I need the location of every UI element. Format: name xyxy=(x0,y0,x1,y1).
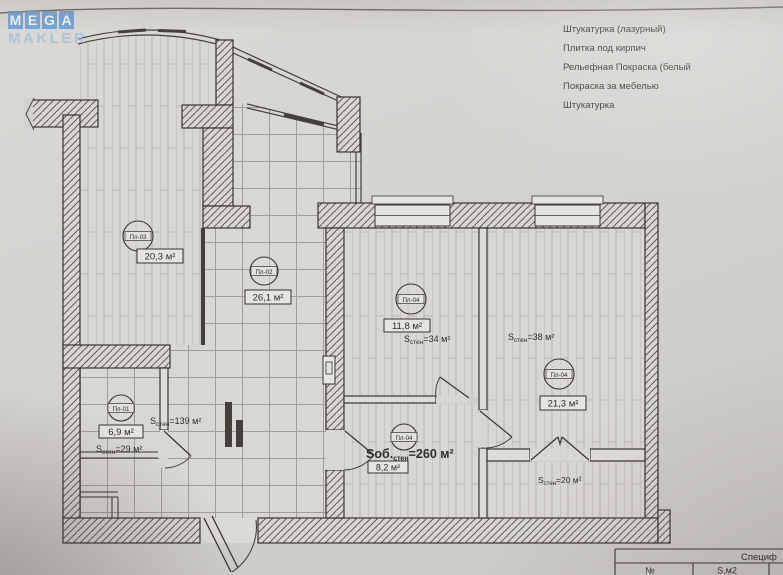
spec-table: Специф № S,м2 xyxy=(615,549,783,575)
room-area: 6,9 м² xyxy=(108,427,134,438)
finish-legend: Штукатурка (лазурный) Плитка под кирпич … xyxy=(563,20,691,115)
legend-item: Покраска за мебелью xyxy=(563,77,691,96)
room-code: Пл-04 xyxy=(550,372,568,379)
watermark-letter: G xyxy=(42,11,57,29)
watermark-megamakler: M E G A MAKLER xyxy=(8,11,87,46)
paper-edge-line xyxy=(0,7,783,13)
legend-item: Плитка под кирпич xyxy=(563,39,691,58)
wall-break-symbol xyxy=(24,98,34,130)
spec-col-number: № xyxy=(645,566,655,575)
room-code: Пл-01 xyxy=(112,406,130,413)
room-area: 26,1 м² xyxy=(253,293,284,304)
watermark-letter: M xyxy=(8,11,23,29)
watermark-top-word: M E G A xyxy=(8,11,87,29)
window-sill-icon xyxy=(372,196,453,204)
watermark-letter: E xyxy=(25,11,40,29)
electrical-panel-icon xyxy=(323,356,335,384)
watermark-letter: A xyxy=(59,11,74,29)
room-code: Пл-03 xyxy=(129,234,147,241)
window-sill-icon xyxy=(532,196,603,204)
room-area: 20,3 м² xyxy=(145,252,176,263)
legend-item: Рельефная Покраска (белый xyxy=(563,58,691,77)
legend-item: Штукатурка (лазурный) xyxy=(563,20,691,39)
legend-item: Штукатурка xyxy=(563,96,691,115)
total-walls-area: Sоб.стен=260 м² xyxy=(366,447,454,463)
room-code: Пл-02 xyxy=(255,269,273,276)
spec-table-title: Специф xyxy=(741,552,777,563)
room-code: Пл-04 xyxy=(402,297,420,304)
spec-col-area: S,м2 xyxy=(717,566,737,575)
room-area: 8,2 м² xyxy=(376,463,400,473)
room-area: 21,3 м² xyxy=(548,399,579,410)
room-area: 11,8 м² xyxy=(392,321,422,332)
watermark-bottom-word: MAKLER xyxy=(8,31,87,46)
floorplan-photo: Пл-03 20,3 м² Пл-02 26,1 м² Пл-04 11,8 м… xyxy=(0,0,783,575)
room-code: Пл-04 xyxy=(395,435,413,442)
